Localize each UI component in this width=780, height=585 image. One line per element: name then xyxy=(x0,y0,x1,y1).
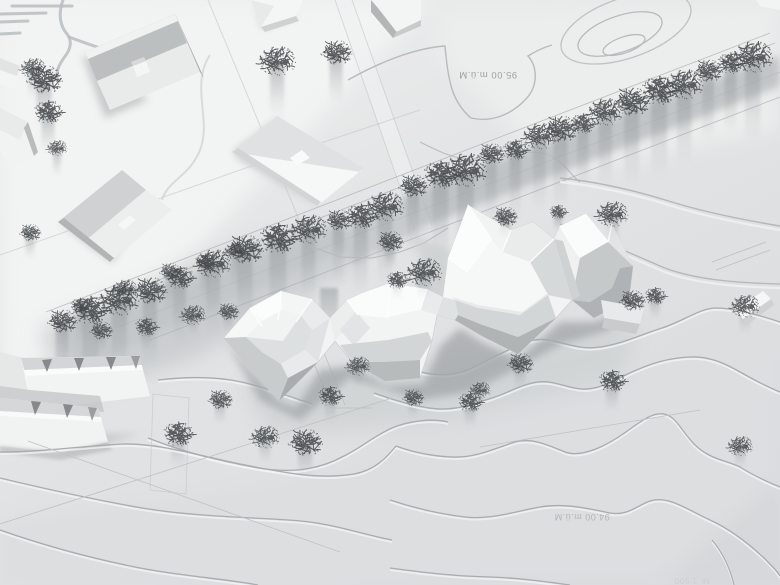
svg-text:95.00 m.ü.M: 95.00 m.ü.M xyxy=(459,69,517,80)
svg-text:94.00 m.ü.M: 94.00 m.ü.M xyxy=(554,512,610,522)
svg-text:M. 1:500: M. 1:500 xyxy=(674,576,709,585)
